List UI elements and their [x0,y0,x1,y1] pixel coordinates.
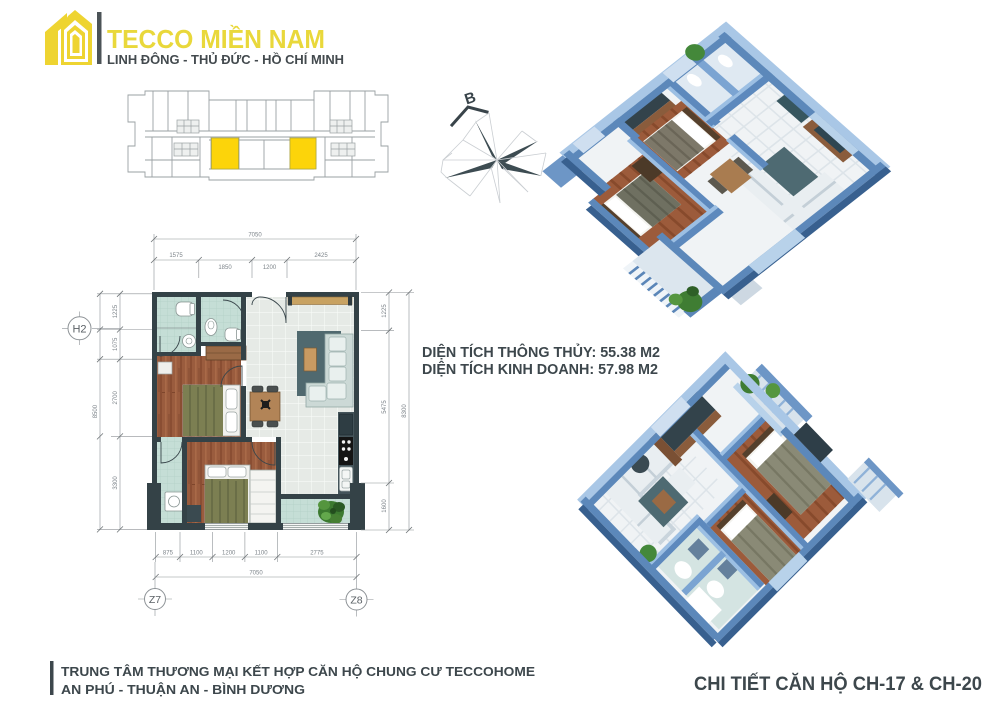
svg-text:1075: 1075 [113,337,119,351]
svg-text:1850: 1850 [218,265,232,271]
svg-text:TECCO MIỀN NAM: TECCO MIỀN NAM [107,24,325,54]
svg-text:H2: H2 [72,323,86,335]
svg-text:2700: 2700 [113,390,119,404]
svg-text:7050: 7050 [249,571,263,577]
svg-text:1600: 1600 [382,499,388,513]
svg-text:2425: 2425 [314,253,328,259]
svg-text:1100: 1100 [255,551,269,557]
svg-text:TRUNG TÂM THƯƠNG MẠI KẾT HỢP C: TRUNG TÂM THƯƠNG MẠI KẾT HỢP CĂN HỘ CHUN… [61,664,535,679]
svg-text:1225: 1225 [382,304,388,318]
svg-text:LINH ĐÔNG - THỦ ĐỨC - HỒ CHÍ M: LINH ĐÔNG - THỦ ĐỨC - HỒ CHÍ MINH [107,52,344,67]
svg-text:5475: 5475 [382,400,388,414]
svg-text:7050: 7050 [248,233,262,239]
svg-text:DIỆN TÍCH THÔNG THỦY: 55.38 M2: DIỆN TÍCH THÔNG THỦY: 55.38 M2 [422,343,660,361]
svg-text:8500: 8500 [93,404,99,418]
svg-text:1200: 1200 [222,551,236,557]
svg-text:DIỆN TÍCH KINH DOANH: 57.98 M: DIỆN TÍCH KINH DOANH: 57.98 M2 [422,360,658,378]
svg-text:8300: 8300 [402,404,408,418]
svg-text:Z8: Z8 [350,595,362,607]
svg-text:1225: 1225 [113,304,119,318]
svg-text:2775: 2775 [310,551,324,557]
svg-text:1200: 1200 [263,265,277,271]
svg-text:3300: 3300 [113,476,119,490]
svg-text:AN PHÚ - THUẬN AN - BÌNH DƯƠNG: AN PHÚ - THUẬN AN - BÌNH DƯƠNG [61,682,305,697]
svg-text:CHI TIẾT CĂN HỘ CH-17 & CH-20: CHI TIẾT CĂN HỘ CH-17 & CH-20 [694,671,982,695]
svg-text:875: 875 [163,551,174,557]
svg-text:1575: 1575 [169,253,183,259]
svg-text:1100: 1100 [190,551,204,557]
svg-text:Z7: Z7 [149,594,161,606]
